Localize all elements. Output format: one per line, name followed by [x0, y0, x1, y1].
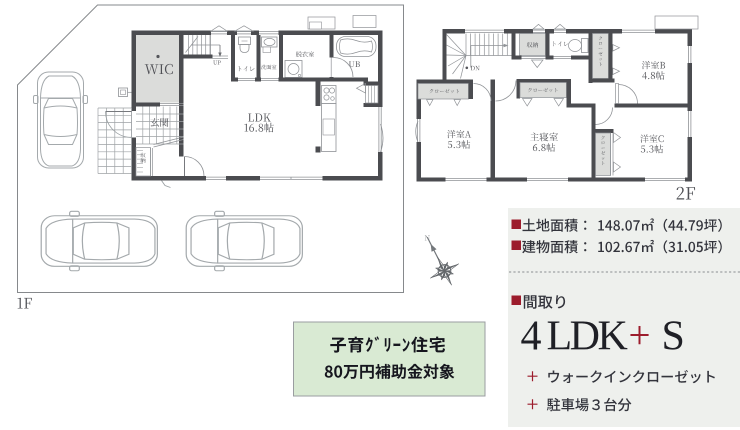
- svg-text:LDK: LDK: [547, 314, 628, 360]
- svg-text:+: +: [629, 314, 651, 357]
- svg-text:S: S: [662, 314, 685, 360]
- svg-text:4: 4: [521, 314, 542, 360]
